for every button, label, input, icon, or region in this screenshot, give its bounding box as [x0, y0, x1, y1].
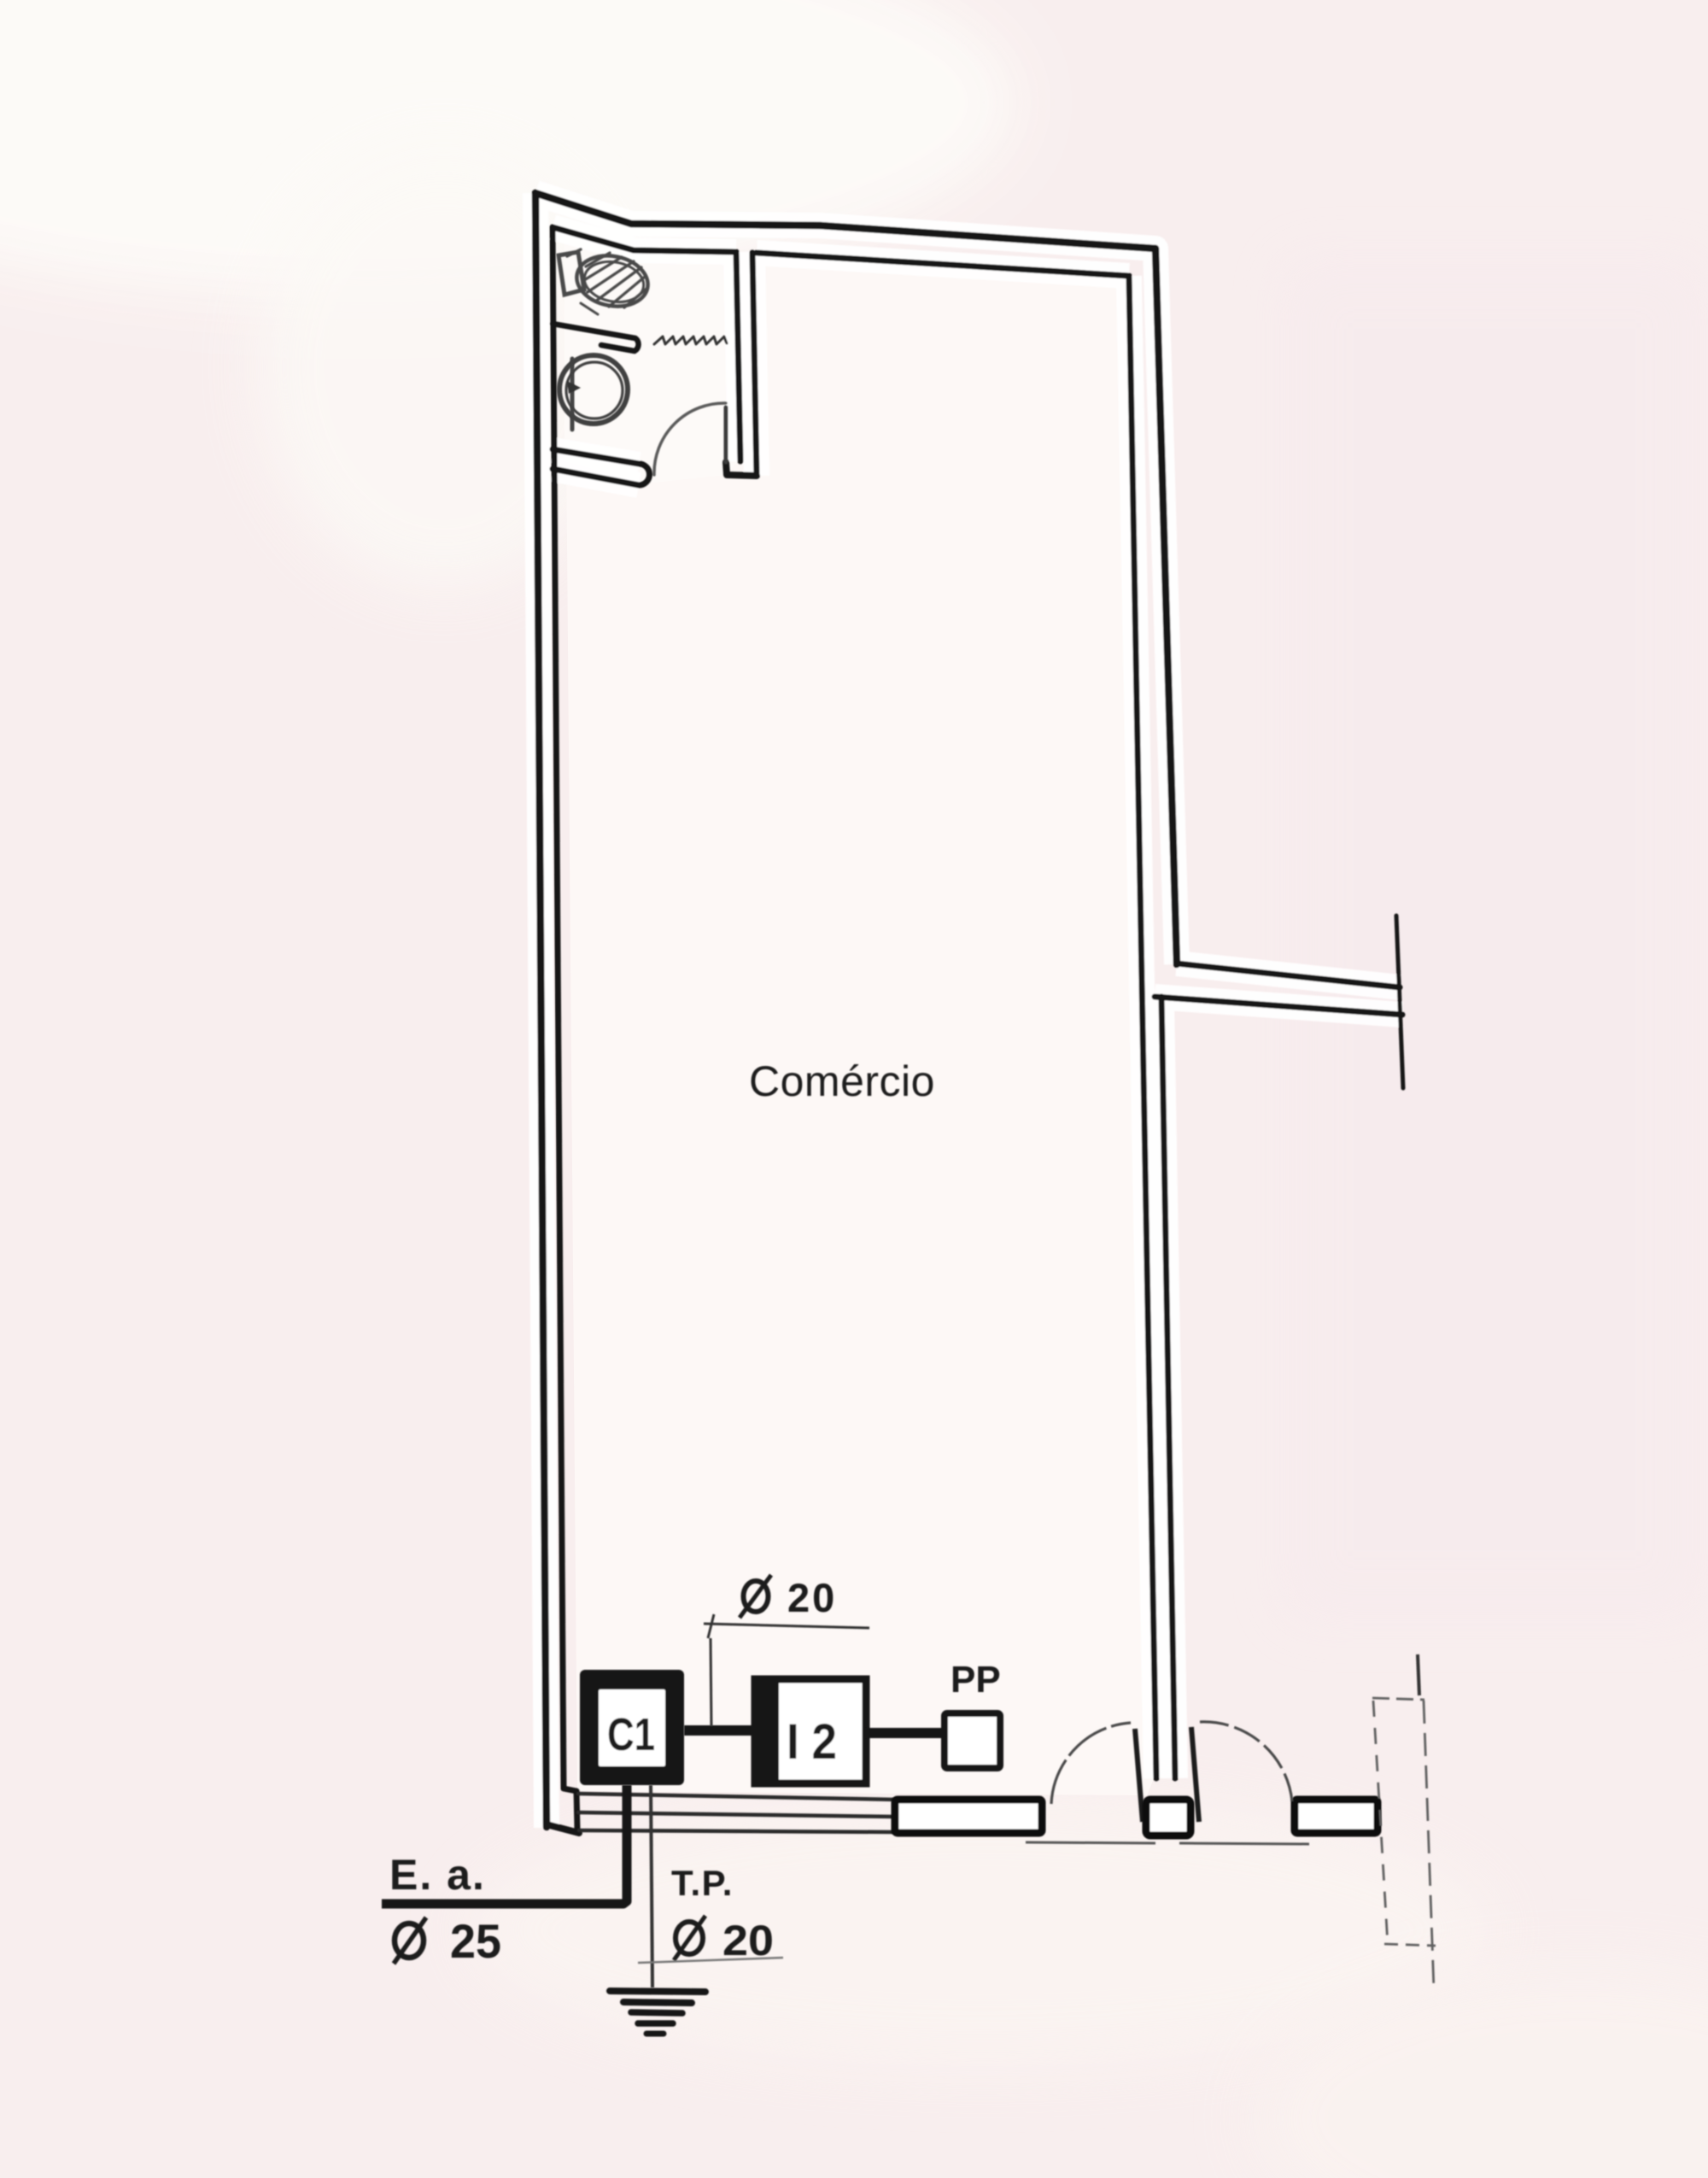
svg-text:25: 25 — [450, 1914, 501, 1968]
svg-text:Comércio: Comércio — [749, 1057, 935, 1105]
svg-text:20: 20 — [787, 1575, 837, 1620]
svg-text:E. a.: E. a. — [389, 1851, 486, 1899]
svg-text:PP: PP — [951, 1659, 1001, 1701]
svg-text:C1: C1 — [607, 1709, 655, 1760]
svg-text:T.P.: T.P. — [671, 1863, 734, 1903]
svg-text:I 2: I 2 — [787, 1714, 837, 1770]
